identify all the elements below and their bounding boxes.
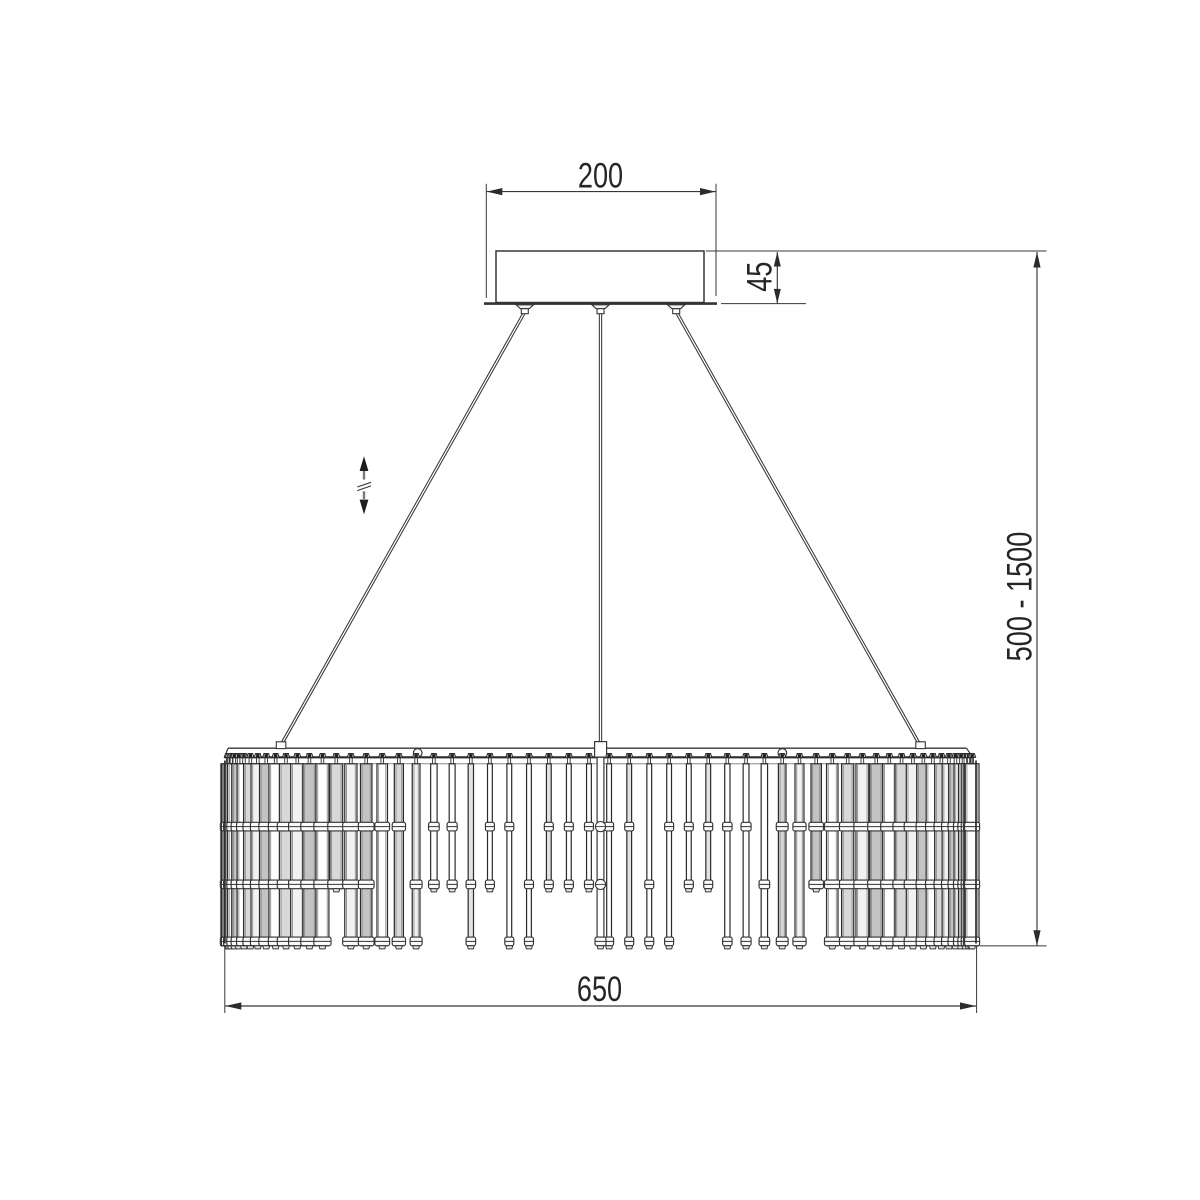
svg-text:200: 200: [578, 156, 623, 195]
svg-text:45: 45: [740, 262, 779, 292]
svg-text:650: 650: [577, 970, 622, 1009]
svg-text:500 - 1500: 500 - 1500: [1000, 532, 1039, 662]
